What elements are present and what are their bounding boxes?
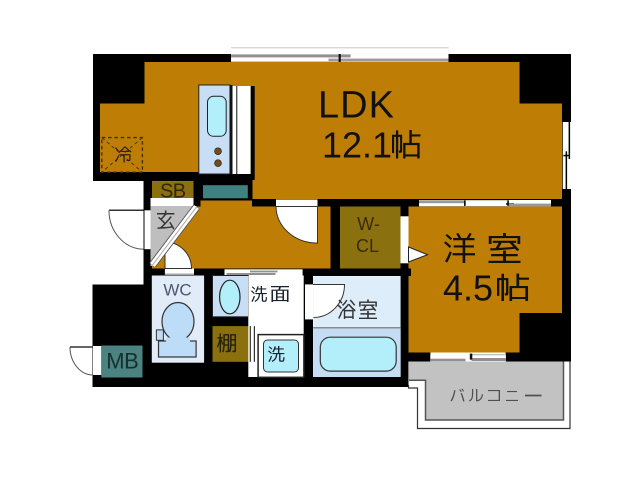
svg-text:MB: MB: [106, 349, 138, 374]
svg-text:4.5: 4.5: [443, 268, 493, 309]
svg-text:12.1: 12.1: [322, 125, 392, 166]
svg-text:CL: CL: [356, 236, 379, 256]
svg-text:W-: W-: [357, 214, 380, 234]
svg-text:LDK: LDK: [318, 85, 395, 127]
svg-text:WC: WC: [163, 281, 191, 300]
